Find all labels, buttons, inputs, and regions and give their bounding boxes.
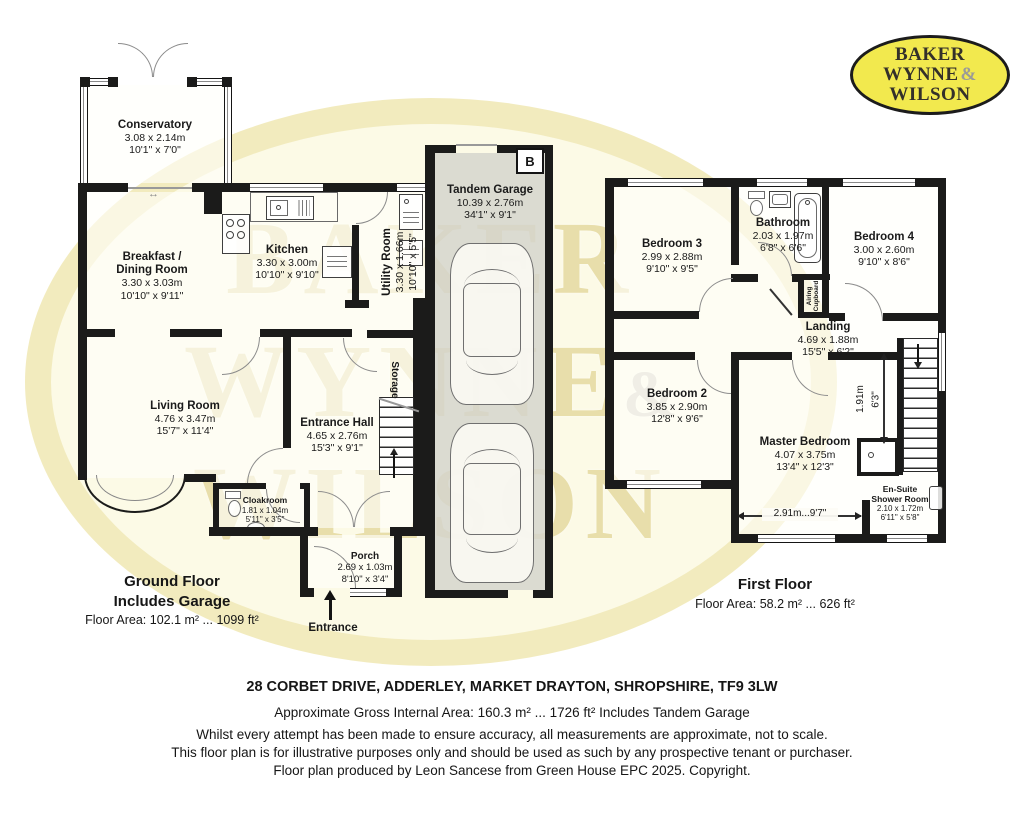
circle-detail: [237, 231, 245, 239]
logo-wynne: WYNNE: [883, 64, 958, 85]
copyright-line: Floor plan produced by Leon Sancese from…: [0, 763, 1024, 778]
room-dim-ft: 5'11" x 3'5": [233, 515, 297, 524]
wall-segment: [323, 183, 397, 192]
stairs-down: [903, 338, 938, 472]
room-label-living-room: Living Room 4.76 x 3.47m 15'7" x 11'4": [125, 400, 245, 438]
wall-segment: [605, 311, 699, 319]
room-dim-m: 2.03 x 1.97m: [733, 230, 833, 242]
wall-segment: [386, 588, 402, 597]
room-dim-ft: 9'10" x 8'6": [824, 256, 944, 268]
door-arc: [153, 43, 188, 77]
dim-label-63ft: 6'3": [870, 380, 883, 420]
wall-segment: [533, 590, 553, 598]
wall-segment: [367, 330, 413, 338]
car-part: [463, 463, 521, 535]
room-dim-ft: 9'10" x 9'5": [612, 263, 732, 275]
room-dim-m: 2.69 x 1.03m: [330, 562, 400, 573]
logo-line1: BAKER: [895, 45, 965, 65]
line: [917, 344, 919, 364]
room-name: Conservatory: [105, 119, 205, 132]
floor-area: Floor Area: 58.2 m² ... 626 ft²: [625, 595, 925, 614]
window: [197, 78, 222, 86]
disclaimer-line-2: This floor plan is for illustrative purp…: [0, 745, 1024, 760]
room-label-bedroom-3: Bedroom 3 2.99 x 2.88m 9'10" x 9'5": [612, 238, 732, 276]
room-label-conservatory: Conservatory 3.08 x 2.14m 10'1" x 7'0": [105, 119, 205, 157]
room-name: Utility Room: [381, 228, 394, 296]
room-name: Tandem Garage: [430, 184, 550, 197]
room-dim-ft: 12'8" x 9'6": [617, 413, 737, 425]
line: [393, 454, 395, 478]
room-label-kitchen: Kitchen 3.30 x 3.00m 10'10" x 9'10": [247, 244, 327, 282]
room-label-tandem-garage: Tandem Garage 10.39 x 2.76m 34'1" x 9'1": [430, 184, 550, 222]
window: [887, 534, 927, 543]
line: [329, 598, 332, 620]
wall-segment: [108, 77, 118, 87]
room-label-cloakroom: Cloakroom 1.81 x 1.04m 5'11" x 3'5": [233, 496, 297, 524]
stairs-down-arrow-icon: [914, 362, 922, 369]
window: [350, 588, 386, 597]
first-floor-title: First Floor Floor Area: 58.2 m² ... 626 …: [625, 575, 925, 613]
boiler-box: B: [516, 148, 544, 174]
disclaimer-line-1: Whilst every attempt has been made to en…: [0, 727, 1024, 742]
arrow-head: [737, 512, 744, 520]
logo-line2: WYNNE&: [883, 65, 977, 85]
room-dim-m: 2.10 x 1.72m: [845, 504, 955, 513]
room-dim-ft: 13'4" x 12'3": [745, 461, 865, 473]
wall-segment: [352, 225, 359, 308]
wall-segment: [304, 483, 310, 529]
room-name: Entrance Hall: [277, 417, 397, 430]
wall-segment: [204, 190, 222, 214]
dim-label-291m: 2.91m...9'7": [762, 508, 838, 521]
room-dim-ft: 10'10" x 9'10": [247, 269, 327, 281]
wall-segment: [835, 534, 887, 543]
room-label-ensuite: En-Suite Shower Room 2.10 x 1.72m 6'11" …: [845, 485, 955, 522]
room-dim-m: 3.30 x 3.03m: [92, 277, 212, 289]
door-arc: [118, 43, 153, 77]
room-dim-ft: 15'3" x 9'1": [277, 442, 397, 454]
room-name: Bathroom: [733, 217, 833, 230]
room-dim-ft: 10'1" x 7'0": [105, 144, 205, 156]
room-dim-ft: 15'7" x 11'4": [125, 425, 245, 437]
wall-segment: [260, 329, 352, 337]
wall-segment: [85, 329, 115, 337]
circle-detail: [226, 219, 234, 227]
wall-segment: [184, 474, 216, 482]
sliding-door-arrow-icon: ↔: [148, 188, 159, 200]
room-name: Cloakroom: [233, 496, 297, 506]
room-dim-ft: 10'10" x 9'11": [92, 290, 212, 302]
circle-detail: [276, 205, 281, 210]
room-label-bathroom: Bathroom 2.03 x 1.97m 6'8" x 6'6": [733, 217, 833, 255]
wall-segment: [703, 178, 757, 187]
car-2: [450, 423, 534, 583]
room-label-bedroom-4: Bedroom 4 3.00 x 2.60m 9'10" x 8'6": [824, 231, 944, 269]
airing-cupboard-label: Airing Cupboard: [804, 276, 822, 316]
logo-ampersand: &: [961, 64, 977, 85]
wall-segment: [731, 274, 758, 282]
hatch-detail: [296, 200, 310, 216]
room-dim-ft: 8'10" x 3'4": [330, 574, 400, 585]
wall-segment: [170, 329, 222, 337]
line: [883, 358, 885, 440]
fixture: [748, 191, 765, 199]
car-part: [463, 283, 521, 357]
window: [90, 78, 108, 86]
room-name: Porch: [330, 551, 400, 562]
arrow-head: [880, 437, 888, 444]
room-dim-m: 3.00 x 2.60m: [824, 244, 944, 256]
fixture: [772, 194, 788, 205]
room-dim-ft: 6'11" x 5'8": [845, 513, 955, 522]
room-label-porch: Porch 2.69 x 1.03m 8'10" x 3'4": [330, 551, 400, 585]
room-dim-m: 3.08 x 2.14m: [105, 132, 205, 144]
room-dim-m: 1.81 x 1.04m: [233, 506, 297, 515]
wall-segment: [425, 590, 508, 598]
floor-area: Floor Area: 102.1 m² ... 1099 ft²: [22, 611, 322, 630]
circle-detail: [805, 200, 810, 205]
window: [938, 333, 946, 391]
airing-text: Airing Cupboard: [806, 281, 821, 312]
wall-segment: [605, 352, 695, 360]
storage-label: Storage: [385, 340, 403, 420]
room-dim-m: 4.76 x 3.47m: [125, 413, 245, 425]
storage-text: Storage: [388, 361, 399, 398]
wall-segment: [222, 77, 232, 87]
room-label-landing: Landing 4.69 x 1.88m 15'5" x 6'2": [768, 321, 888, 359]
window: [627, 480, 701, 489]
room-dim-ft: 6'8" x 6'6": [733, 242, 833, 254]
window: [758, 534, 835, 543]
window: [843, 178, 915, 187]
room-dim-ft: 10'10" x 5'5": [407, 233, 419, 291]
floor-subtitle: Includes Garage: [22, 592, 322, 612]
wall-segment: [927, 534, 944, 543]
gross-internal-area: Approximate Gross Internal Area: 160.3 m…: [0, 705, 1024, 720]
wall-segment: [829, 313, 845, 321]
window: [224, 87, 232, 183]
brand-logo: BAKER WYNNE& WILSON: [850, 35, 1010, 115]
room-label-master-bedroom: Master Bedroom 4.07 x 3.75m 13'4" x 12'3…: [745, 436, 865, 474]
room-label-utility: Utility Room 3.30 x 1.66m 10'10" x 5'5": [379, 202, 421, 322]
room-name: Living Room: [125, 400, 245, 413]
line: [456, 144, 497, 146]
room-dim-m: 3.30 x 1.66m: [394, 232, 406, 293]
dim-label-191m: 1.91m: [854, 376, 868, 422]
property-address: 28 CORBET DRIVE, ADDERLEY, MARKET DRAYTO…: [0, 679, 1024, 695]
circle-detail: [237, 219, 245, 227]
window: [757, 178, 807, 187]
wall-segment: [605, 480, 627, 489]
room-dim-m: 3.85 x 2.90m: [617, 401, 737, 413]
ground-floor-title: Ground Floor Includes Garage Floor Area:…: [22, 572, 322, 630]
wall-segment: [80, 77, 90, 87]
room-dim-m: 3.30 x 3.00m: [247, 257, 327, 269]
wall-segment: [425, 145, 456, 153]
room-dim-ft: 34'1" x 9'1": [430, 209, 550, 221]
room-dim-m: 4.69 x 1.88m: [768, 334, 888, 346]
room-dim-m: 2.99 x 2.88m: [612, 251, 732, 263]
wall-segment: [731, 352, 739, 536]
wall-segment: [345, 300, 369, 308]
circle-detail: [226, 231, 234, 239]
wall-segment: [883, 313, 938, 321]
logo-line3: WILSON: [889, 85, 970, 105]
circle-detail: [868, 452, 874, 458]
bathroom-toilet: [750, 200, 763, 216]
room-name: Bedroom 2: [617, 388, 737, 401]
wall-segment: [213, 483, 219, 529]
hatch-detail: [327, 252, 347, 270]
car-1: [450, 243, 534, 405]
room-dim-m: 4.07 x 3.75m: [745, 449, 865, 461]
line: [128, 187, 192, 189]
wall-segment: [213, 483, 266, 489]
window: [80, 87, 88, 183]
room-label-breakfast-dining: Breakfast / Dining Room 3.30 x 3.03m 10'…: [92, 251, 212, 302]
room-dim-m: 10.39 x 2.76m: [430, 197, 550, 209]
dim-text: 6'3": [870, 391, 882, 408]
window: [628, 178, 703, 187]
floor-title: Ground Floor: [22, 572, 322, 592]
room-name: En-Suite Shower Room: [845, 485, 955, 504]
dim-text: 1.91m: [855, 385, 867, 413]
wall-segment: [605, 178, 614, 488]
room-name: Kitchen: [247, 244, 327, 257]
window: [250, 183, 323, 192]
floor-title: First Floor: [625, 575, 925, 595]
room-label-bedroom-2: Bedroom 2 3.85 x 2.90m 12'8" x 9'6": [617, 388, 737, 426]
wall-segment: [187, 77, 197, 87]
room-name: Bedroom 3: [612, 238, 732, 251]
room-dim-ft: 15'5" x 6'2": [768, 346, 888, 358]
floorplan-canvas: BAKER WYNNE& WILSON BAKER WYNNE& WILSON …: [0, 0, 1024, 823]
room-name: Landing: [768, 321, 888, 334]
room-name: Master Bedroom: [745, 436, 865, 449]
window: [397, 183, 425, 192]
room-label-entrance-hall: Entrance Hall 4.65 x 2.76m 15'3" x 9'1": [277, 417, 397, 455]
room-name: Breakfast / Dining Room: [92, 251, 212, 277]
room-dim-m: 4.65 x 2.76m: [277, 430, 397, 442]
room-name: Bedroom 4: [824, 231, 944, 244]
